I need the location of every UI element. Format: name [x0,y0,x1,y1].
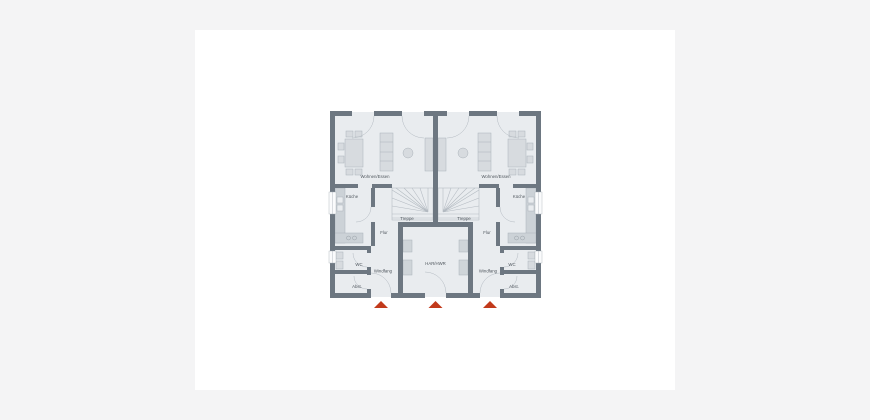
room-label-kitchen-right: Küche [513,194,526,199]
room-label-storage-left: Abst. [352,284,362,289]
room-label-living-right: Wohnen/Essen [481,174,511,179]
room-label-storage-right: Abst. [509,284,519,289]
room-label-vestibule-left: Windfang [374,269,393,274]
room-label-vestibule-right: Windfang [479,269,498,274]
floorplan-viewport: Wohnen/Essen Wohnen/Essen Küche Küche Tr… [0,0,870,420]
room-label-wc-right: WC [508,262,515,267]
room-label-kitchen-left: Küche [346,194,359,199]
room-label-stairs-right: Treppe [457,216,471,221]
room-label-utility: HAR/HWR [425,261,446,266]
room-label-wc-left: WC [355,262,362,267]
floor-plan: Wohnen/Essen Wohnen/Essen Küche Küche Tr… [329,111,542,308]
room-label-living-left: Wohnen/Essen [360,174,390,179]
room-label-hall-left: Flur [380,230,388,235]
room-label-stairs-left: Treppe [400,216,414,221]
room-label-hall-right: Flur [483,230,491,235]
